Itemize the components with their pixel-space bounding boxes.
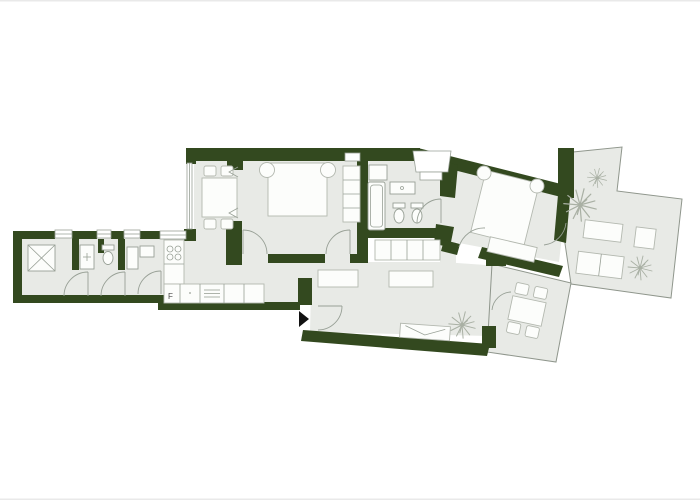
dining-chair: [204, 166, 216, 176]
floor-plan-page: F: [0, 0, 700, 500]
garden-chair: [525, 325, 540, 338]
hand-basin: [140, 246, 154, 257]
left-wing-west-wall: [13, 231, 22, 303]
garden-chair: [514, 282, 529, 295]
bedside-table: [260, 163, 275, 178]
toilet-tank: [102, 245, 114, 250]
left-wing-bottom-wall: [13, 295, 178, 303]
toilet-tank: [393, 203, 405, 208]
wall-vent: [345, 153, 360, 161]
garden-chair: [533, 286, 548, 299]
sink-dot: [189, 292, 191, 294]
main-top-wall: [186, 148, 420, 161]
left-wing-fixtures: [28, 245, 154, 271]
entrance-arrow-icon: [299, 311, 309, 327]
hall-wardrobe: [375, 240, 440, 260]
toilet-icon: [394, 209, 404, 223]
bedroom1-furniture: [260, 163, 361, 223]
desk: [318, 270, 358, 287]
entry-pier: [298, 278, 312, 305]
dining-northwest-pier: [186, 148, 196, 164]
bedroom1-bottom-wall-right: [350, 254, 368, 263]
dining-chair: [204, 219, 216, 229]
left-wing-divider-1: [72, 239, 79, 270]
fridge-label: F: [168, 292, 173, 301]
terrace-side-table: [634, 227, 656, 249]
left-wing-top-wall-1: [13, 231, 55, 239]
sliding-wardrobe: [375, 240, 440, 260]
daybed: [400, 323, 451, 340]
bedroom1-bed: [268, 163, 327, 216]
toilet-icon: [103, 252, 113, 265]
dining-chair: [221, 219, 233, 229]
bathroom-cabinet: [369, 165, 387, 180]
left-wing-divider-3: [118, 239, 125, 270]
floorplan-svg: F: [0, 0, 700, 500]
bedroom1-bottom-wall-left: [268, 254, 325, 263]
bedside-table: [530, 179, 544, 193]
bedside-table: [321, 163, 336, 178]
terrace-floor: [563, 147, 682, 298]
page-top-border: [0, 0, 700, 2]
garden-chair: [506, 321, 521, 334]
duct-niche: [413, 151, 451, 172]
left-wing-top-wall-2: [72, 231, 97, 239]
bedside-table: [477, 166, 491, 180]
kitchen-counter-vertical: [164, 240, 184, 284]
terrace-corner-pier: [558, 148, 574, 198]
utility-cabinet: [127, 247, 138, 269]
left-wing-top-wall-3: [111, 231, 124, 239]
duct-niche-shelf: [420, 172, 442, 180]
bidet-tank: [411, 203, 423, 208]
left-wing-top-wall-4: [140, 231, 162, 239]
bathroom-sink: [390, 182, 415, 194]
coffee-table: [389, 271, 433, 287]
